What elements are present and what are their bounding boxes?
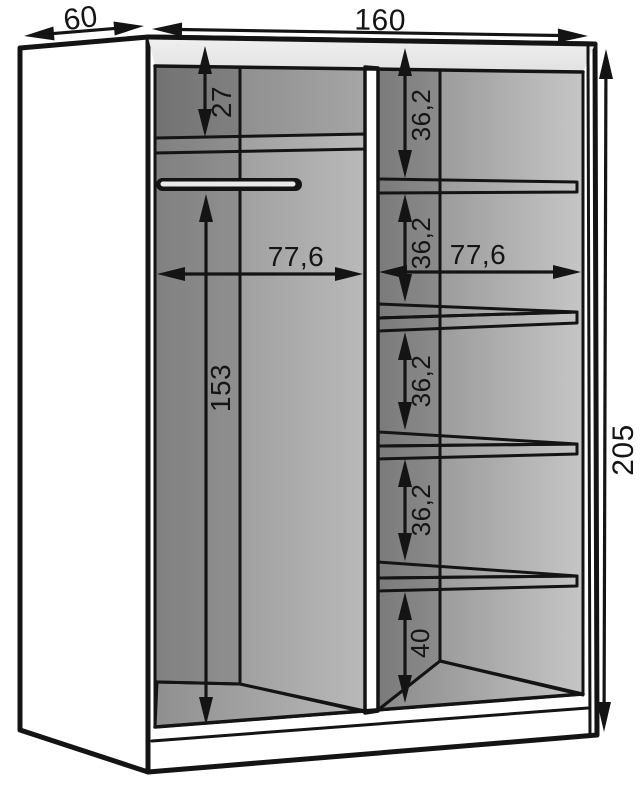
- center-divider: [365, 67, 378, 713]
- wardrobe-dimension-diagram: 60 160 205 27 153 77,6 77,6 36,2 36,2 36…: [0, 0, 643, 794]
- top-niche-shade: [155, 66, 365, 138]
- depth-label: 60: [61, 0, 100, 37]
- hanging-height-label: 153: [205, 364, 236, 412]
- left-width-label: 77,6: [268, 241, 325, 272]
- wardrobe-body: [20, 37, 597, 772]
- shelf-gap-3-label: 36,2: [406, 355, 436, 408]
- hanging-rod: [156, 178, 302, 191]
- dim-height-arrow: [597, 49, 613, 732]
- width-label: 160: [354, 4, 406, 38]
- shelf-gap-2-label: 36,2: [406, 217, 436, 270]
- right-outer-double-edge: [588, 46, 590, 733]
- side-panel: [20, 37, 148, 772]
- bottom-gap-label: 40: [405, 628, 435, 658]
- top-gap-label: 27: [206, 86, 237, 118]
- shelf-gap-1-label: 36,2: [406, 89, 436, 142]
- height-label: 205: [607, 424, 640, 476]
- shelf-gap-4-label: 36,2: [406, 484, 436, 537]
- diagram-canvas: 60 160 205 27 153 77,6 77,6 36,2 36,2 36…: [0, 0, 643, 794]
- right-width-label: 77,6: [450, 239, 507, 270]
